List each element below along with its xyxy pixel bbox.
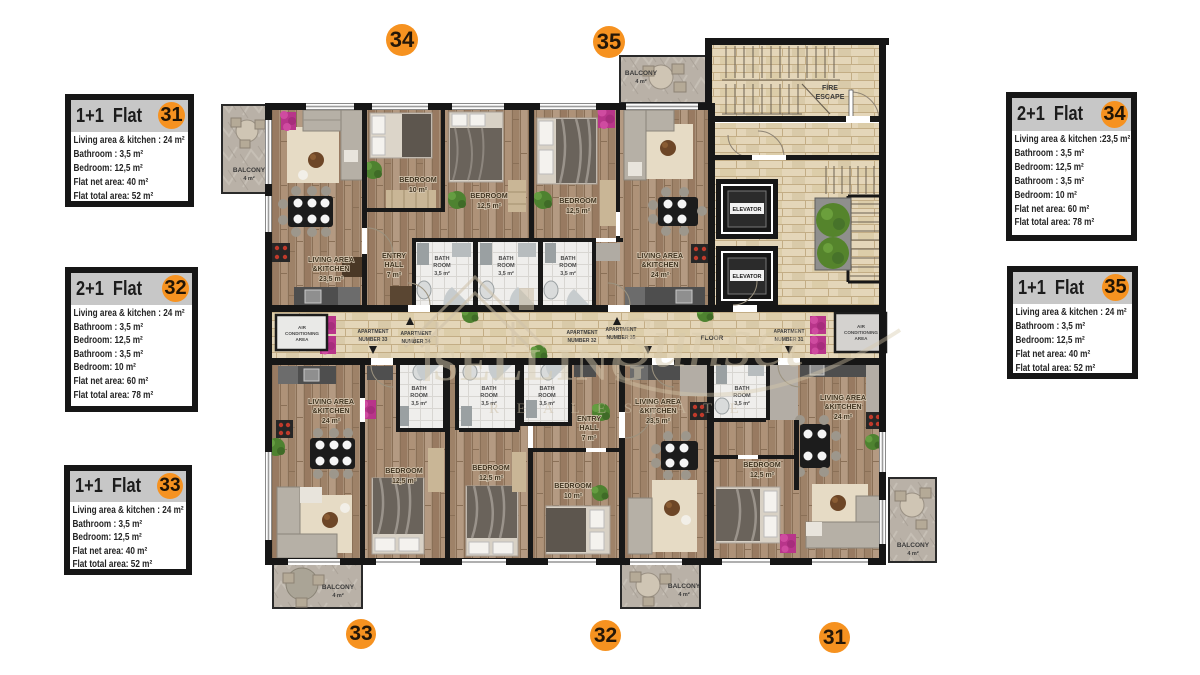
svg-text:12,5 m²: 12,5 m² <box>479 475 504 482</box>
svg-text:24 m²: 24 m² <box>651 272 670 279</box>
svg-text:ROOM: ROOM <box>497 263 515 269</box>
svg-text:R E A L E S T A T E: R E A L E S T A T E <box>489 401 746 417</box>
svg-text:BEDROOM: BEDROOM <box>470 191 508 200</box>
svg-text:ELEVATOR: ELEVATOR <box>732 274 761 280</box>
svg-text:24 m²: 24 m² <box>834 414 853 421</box>
svg-text:24 m²: 24 m² <box>322 418 341 425</box>
svg-text:AREA: AREA <box>854 336 868 341</box>
svg-text:APARTMENT: APARTMENT <box>566 330 597 336</box>
svg-text:BEDROOM: BEDROOM <box>385 466 423 475</box>
svg-text:HALL: HALL <box>579 423 599 432</box>
svg-text:AIR: AIR <box>298 325 307 330</box>
svg-text:FİRE: FİRE <box>822 84 838 92</box>
svg-text:ELEVATOR: ELEVATOR <box>732 207 761 213</box>
svg-text:12,5 m²: 12,5 m² <box>566 208 591 215</box>
svg-text:BEDROOM: BEDROOM <box>472 463 510 472</box>
svg-text:&KITCHEN: &KITCHEN <box>312 264 349 273</box>
svg-text:LIVING AREA: LIVING AREA <box>820 393 866 402</box>
svg-text:BATH: BATH <box>434 256 449 262</box>
svg-text:BALCONY: BALCONY <box>233 167 266 174</box>
svg-text:AIR: AIR <box>857 324 866 329</box>
svg-text:ROOM: ROOM <box>538 393 556 399</box>
svg-text:12,5 m²: 12,5 m² <box>392 478 417 485</box>
svg-text:BATH: BATH <box>498 256 513 262</box>
svg-text:SELLING: SELLING <box>433 340 647 390</box>
svg-text:&KITCHEN: &KITCHEN <box>312 406 349 415</box>
svg-text:ROOM: ROOM <box>559 263 577 269</box>
svg-text:ROOM: ROOM <box>410 393 428 399</box>
svg-text:4 m²: 4 m² <box>243 175 254 182</box>
svg-text:CONDITIONING: CONDITIONING <box>285 331 319 336</box>
svg-text:3,5 m²: 3,5 m² <box>434 271 450 277</box>
svg-text:CONDITIONING: CONDITIONING <box>844 330 878 335</box>
svg-text:7 m²: 7 m² <box>582 435 597 442</box>
svg-text:ROOM: ROOM <box>480 393 498 399</box>
svg-text:BEDROOM: BEDROOM <box>554 481 592 490</box>
svg-text:ROOM: ROOM <box>433 263 451 269</box>
svg-text:BEDROOM: BEDROOM <box>399 175 437 184</box>
svg-text:4 m²: 4 m² <box>332 592 343 599</box>
svg-text:ENTRY: ENTRY <box>382 251 406 260</box>
svg-text:BEDROOM: BEDROOM <box>743 460 781 469</box>
svg-text:BALCONY: BALCONY <box>625 70 658 77</box>
svg-text:10 m²: 10 m² <box>564 493 583 500</box>
svg-text:BALCONY: BALCONY <box>897 542 930 549</box>
svg-text:BALCONY: BALCONY <box>322 584 355 591</box>
svg-text:12,5 m²: 12,5 m² <box>477 203 502 210</box>
svg-text:3,5 m²: 3,5 m² <box>560 271 576 277</box>
svg-text:APARTMENT: APARTMENT <box>357 329 388 335</box>
svg-text:10 m²: 10 m² <box>409 187 428 194</box>
svg-text:3,5 m²: 3,5 m² <box>411 401 427 407</box>
svg-text:Sunset: Sunset <box>616 302 806 382</box>
svg-text:12,5 m²: 12,5 m² <box>750 472 775 479</box>
svg-text:4 m²: 4 m² <box>678 591 689 598</box>
svg-text:&KITCHEN: &KITCHEN <box>641 260 678 269</box>
svg-text:&KITCHEN: &KITCHEN <box>824 402 861 411</box>
svg-text:BATH: BATH <box>411 386 426 392</box>
svg-text:ESCAPE: ESCAPE <box>816 94 845 101</box>
svg-text:7 m²: 7 m² <box>387 272 402 279</box>
svg-text:3,5 m²: 3,5 m² <box>498 271 514 277</box>
svg-text:BATH: BATH <box>560 256 575 262</box>
svg-text:23,5 m²: 23,5 m² <box>319 276 344 283</box>
svg-text:LIVING AREA: LIVING AREA <box>637 251 683 260</box>
svg-text:NUMBER 33: NUMBER 33 <box>359 337 388 343</box>
svg-text:4 m²: 4 m² <box>907 550 918 557</box>
svg-text:BEDROOM: BEDROOM <box>559 196 597 205</box>
svg-text:HALL: HALL <box>384 260 404 269</box>
svg-text:LIVING AREA: LIVING AREA <box>308 255 354 264</box>
svg-text:4 m²: 4 m² <box>635 78 646 85</box>
svg-text:AREA: AREA <box>295 337 309 342</box>
svg-text:LIVING AREA: LIVING AREA <box>308 397 354 406</box>
svg-text:BALCONY: BALCONY <box>668 583 701 590</box>
